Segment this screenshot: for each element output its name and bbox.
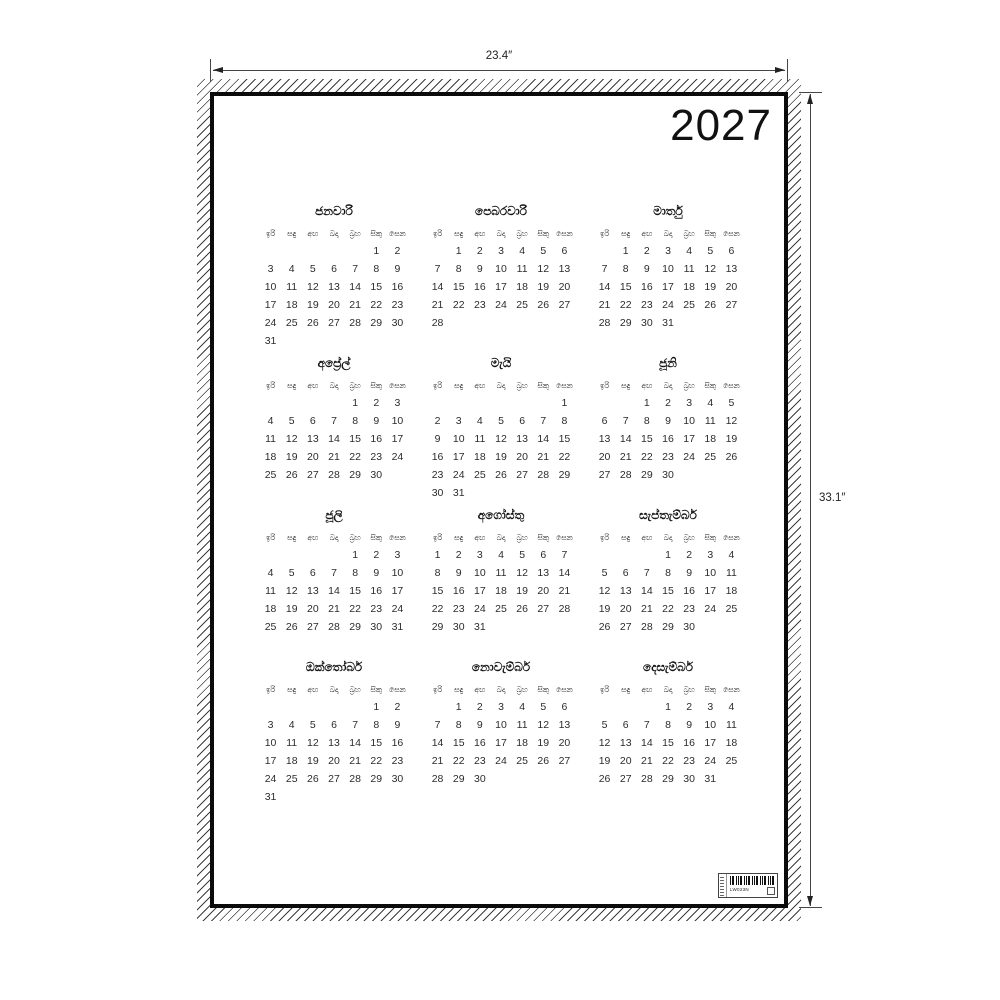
- date-cell: 9: [448, 567, 469, 579]
- date-cell: 3: [679, 397, 700, 409]
- date-cell: 2: [366, 397, 387, 409]
- date-cell: 5: [594, 567, 615, 579]
- date-cell: 27: [594, 469, 615, 481]
- day-header-cell: බදා: [490, 684, 511, 695]
- date-cell: 25: [260, 469, 281, 481]
- date-cell: 28: [533, 469, 554, 481]
- day-header-cell: බදා: [490, 532, 511, 543]
- dates-grid: 1234567891011121314151617181920212223242…: [594, 546, 742, 654]
- date-cell: 1: [554, 397, 575, 409]
- date-cell: 19: [594, 603, 615, 615]
- date-cell: 10: [387, 415, 408, 427]
- date-cell: 18: [512, 281, 533, 293]
- date-cell: 4: [512, 701, 533, 713]
- day-header-cell: බ්‍රහ: [679, 532, 700, 543]
- arrow-right-icon: [775, 67, 785, 73]
- date-cell: 26: [594, 621, 615, 633]
- date-cell: 8: [448, 719, 469, 731]
- date-cell: 12: [302, 281, 323, 293]
- date-cell: 23: [679, 603, 700, 615]
- date-cell: 31: [448, 487, 469, 499]
- date-cell: 4: [469, 415, 490, 427]
- date-cell: 3: [469, 549, 490, 561]
- day-header-cell: සඳු: [281, 228, 302, 239]
- day-header-cell: බදා: [323, 532, 344, 543]
- date-cell: 11: [721, 719, 742, 731]
- day-header-cell: බ්‍රහ: [345, 532, 366, 543]
- date-cell: 20: [323, 755, 344, 767]
- date-cell: 28: [345, 773, 366, 785]
- date-cell: 6: [302, 415, 323, 427]
- day-header-cell: ඉරි: [427, 532, 448, 543]
- dimension-line: [213, 70, 785, 71]
- date-cell: 2: [679, 701, 700, 713]
- date-cell: 27: [554, 755, 575, 767]
- date-cell: 8: [427, 567, 448, 579]
- width-value: 23.4″: [480, 50, 518, 62]
- date-cell: 10: [260, 281, 281, 293]
- date-cell: 5: [594, 719, 615, 731]
- day-header-cell: සිකු: [700, 228, 721, 239]
- day-header-cell: සඳු: [448, 532, 469, 543]
- date-cell: 26: [302, 773, 323, 785]
- date-cell: 7: [554, 549, 575, 561]
- date-cell: 25: [281, 773, 302, 785]
- date-cell: 13: [323, 281, 344, 293]
- date-cell: 22: [448, 755, 469, 767]
- date-cell: 23: [427, 469, 448, 481]
- day-header-cell: සිකු: [533, 228, 554, 239]
- date-cell: 25: [700, 451, 721, 463]
- date-cell: 30: [636, 317, 657, 329]
- date-cell: 9: [679, 567, 700, 579]
- date-cell: 10: [448, 433, 469, 445]
- day-header-row: ඉරිසඳුඅඟබදාබ්‍රහසිකුසෙන: [594, 228, 742, 239]
- date-cell: 29: [657, 621, 678, 633]
- date-cell: 7: [345, 263, 366, 275]
- day-header-cell: සිකු: [533, 532, 554, 543]
- day-header-cell: සිකු: [366, 684, 387, 695]
- date-cell: 26: [281, 621, 302, 633]
- day-header-row: ඉරිසඳුඅඟබදාබ්‍රහසිකුසෙන: [260, 684, 408, 695]
- month-block: සැප්තැම්බර්ඉරිසඳුඅඟබදාබ්‍රහසිකුසෙන123456…: [594, 508, 742, 660]
- day-header-cell: අඟ: [469, 532, 490, 543]
- date-cell: 9: [636, 263, 657, 275]
- date-cell: 22: [657, 603, 678, 615]
- date-cell: 8: [554, 415, 575, 427]
- date-cell: 23: [657, 451, 678, 463]
- date-cell: 15: [366, 281, 387, 293]
- date-cell: 8: [345, 415, 366, 427]
- date-cell: 10: [679, 415, 700, 427]
- date-cell: 18: [721, 585, 742, 597]
- date-cell: 27: [302, 469, 323, 481]
- date-cell: 1: [366, 245, 387, 257]
- date-cell: 21: [554, 585, 575, 597]
- date-cell: 18: [490, 585, 511, 597]
- date-cell: 13: [615, 585, 636, 597]
- width-dimension-label: 23.4″: [213, 50, 785, 62]
- date-cell: 10: [700, 567, 721, 579]
- day-header-cell: බ්‍රහ: [679, 380, 700, 391]
- date-cell: 10: [657, 263, 678, 275]
- date-cell: 1: [345, 549, 366, 561]
- date-cell: 28: [345, 317, 366, 329]
- date-cell: 30: [469, 773, 490, 785]
- day-header-row: ඉරිසඳුඅඟබදාබ්‍රහසිකුසෙන: [427, 380, 575, 391]
- date-cell: 22: [366, 755, 387, 767]
- date-cell: 30: [427, 487, 448, 499]
- date-cell: 16: [657, 433, 678, 445]
- date-cell: 24: [448, 469, 469, 481]
- day-header-cell: බ්‍රහ: [345, 228, 366, 239]
- dates-grid: 1234567891011121314151617181920212223242…: [594, 394, 742, 502]
- date-cell: 3: [260, 263, 281, 275]
- date-cell: 2: [679, 549, 700, 561]
- day-header-cell: සිකු: [366, 228, 387, 239]
- date-cell: 21: [615, 451, 636, 463]
- date-cell: 22: [345, 603, 366, 615]
- date-cell: 6: [594, 415, 615, 427]
- date-cell: 29: [448, 773, 469, 785]
- date-cell: 24: [490, 299, 511, 311]
- date-cell: 15: [636, 433, 657, 445]
- date-cell: 16: [366, 433, 387, 445]
- date-cell: 22: [366, 299, 387, 311]
- date-cell: 17: [700, 737, 721, 749]
- arrow-up-icon: [807, 94, 813, 104]
- day-header-cell: බදා: [657, 228, 678, 239]
- date-cell: 5: [512, 549, 533, 561]
- date-cell: 24: [387, 603, 408, 615]
- month-title: මාර්තු: [594, 204, 742, 219]
- day-header-cell: සෙන: [554, 228, 575, 239]
- day-header-cell: සිකු: [366, 380, 387, 391]
- date-cell: 12: [594, 737, 615, 749]
- date-cell: 20: [594, 451, 615, 463]
- day-header-cell: බදා: [490, 380, 511, 391]
- month-title: අගෝස්තු: [427, 508, 575, 523]
- day-header-cell: සිකු: [700, 380, 721, 391]
- date-cell: 27: [615, 621, 636, 633]
- date-cell: 17: [387, 433, 408, 445]
- day-header-row: ඉරිසඳුඅඟබදාබ්‍රහසිකුසෙන: [427, 684, 575, 695]
- day-header-cell: අඟ: [302, 684, 323, 695]
- date-cell: 2: [657, 397, 678, 409]
- day-header-cell: සඳු: [615, 532, 636, 543]
- date-cell: 27: [302, 621, 323, 633]
- date-cell: 14: [427, 737, 448, 749]
- date-cell: 25: [281, 317, 302, 329]
- day-header-cell: බදා: [323, 684, 344, 695]
- date-cell: 13: [554, 263, 575, 275]
- day-header-cell: බදා: [490, 228, 511, 239]
- day-header-cell: ඉරි: [427, 380, 448, 391]
- date-cell: 14: [345, 281, 366, 293]
- date-cell: 2: [469, 245, 490, 257]
- calendar-poster: 2027 ජනවාරිඉරිසඳුඅඟබදාබ්‍රහසිකුසෙන123456…: [210, 92, 788, 908]
- day-header-cell: සෙන: [387, 684, 408, 695]
- date-cell: 18: [260, 603, 281, 615]
- dimension-tick: [799, 907, 822, 908]
- dimension-tick: [787, 59, 788, 82]
- date-cell: 26: [281, 469, 302, 481]
- date-cell: 26: [533, 299, 554, 311]
- date-cell: 30: [387, 317, 408, 329]
- month-block: දෙසැම්බර්ඉරිසඳුඅඟබදාබ්‍රහසිකුසෙන12345678…: [594, 660, 742, 812]
- date-cell: 18: [512, 737, 533, 749]
- date-cell: 15: [345, 585, 366, 597]
- date-cell: 23: [469, 755, 490, 767]
- date-cell: 20: [615, 755, 636, 767]
- dates-grid: 1234567891011121314151617181920212223242…: [427, 698, 575, 806]
- date-cell: 14: [554, 567, 575, 579]
- date-cell: 23: [366, 451, 387, 463]
- day-header-cell: බදා: [657, 684, 678, 695]
- date-cell: 18: [700, 433, 721, 445]
- date-cell: 9: [366, 415, 387, 427]
- date-cell: 25: [679, 299, 700, 311]
- day-header-cell: ඉරි: [594, 228, 615, 239]
- day-header-row: ඉරිසඳුඅඟබදාබ්‍රහසිකුසෙන: [260, 228, 408, 239]
- date-cell: 2: [387, 701, 408, 713]
- date-cell: 16: [469, 737, 490, 749]
- date-cell: 29: [554, 469, 575, 481]
- date-cell: 4: [700, 397, 721, 409]
- date-cell: 25: [721, 603, 742, 615]
- date-cell: 4: [721, 701, 742, 713]
- date-cell: 23: [448, 603, 469, 615]
- date-cell: 11: [721, 567, 742, 579]
- date-cell: 18: [281, 755, 302, 767]
- date-cell: 30: [366, 469, 387, 481]
- day-header-cell: අඟ: [302, 532, 323, 543]
- day-header-cell: බදා: [657, 380, 678, 391]
- dimension-tick: [799, 92, 822, 93]
- day-header-cell: සඳු: [281, 684, 302, 695]
- date-cell: 25: [512, 299, 533, 311]
- day-header-cell: සිකු: [700, 684, 721, 695]
- day-header-cell: බදා: [323, 228, 344, 239]
- date-cell: 16: [679, 585, 700, 597]
- date-cell: 17: [657, 281, 678, 293]
- day-header-cell: ඉරි: [594, 684, 615, 695]
- date-cell: 30: [657, 469, 678, 481]
- date-cell: 19: [302, 755, 323, 767]
- date-cell: 9: [657, 415, 678, 427]
- date-cell: 3: [700, 701, 721, 713]
- date-cell: 12: [700, 263, 721, 275]
- date-cell: 11: [700, 415, 721, 427]
- date-cell: 2: [366, 549, 387, 561]
- dates-grid: 1234567891011121314151617181920212223242…: [594, 242, 742, 350]
- date-cell: 27: [721, 299, 742, 311]
- date-cell: 1: [366, 701, 387, 713]
- date-cell: 1: [636, 397, 657, 409]
- dates-grid: 1234567891011121314151617181920212223242…: [260, 242, 408, 350]
- date-cell: 21: [345, 755, 366, 767]
- date-cell: 21: [533, 451, 554, 463]
- month-title: දෙසැම්බර්: [594, 660, 742, 675]
- month-block: අගෝස්තුඉරිසඳුඅඟබදාබ්‍රහසිකුසෙන1234567891…: [427, 508, 575, 660]
- date-cell: 23: [469, 299, 490, 311]
- day-header-cell: අඟ: [302, 228, 323, 239]
- date-cell: 8: [657, 719, 678, 731]
- day-header-cell: අඟ: [636, 380, 657, 391]
- date-cell: 8: [345, 567, 366, 579]
- date-cell: 23: [366, 603, 387, 615]
- dates-grid: 1234567891011121314151617181920212223242…: [260, 394, 408, 502]
- day-header-cell: ඉරි: [260, 684, 281, 695]
- date-cell: 6: [615, 567, 636, 579]
- date-cell: 23: [636, 299, 657, 311]
- day-header-cell: ඉරි: [260, 532, 281, 543]
- date-cell: 9: [387, 719, 408, 731]
- date-cell: 2: [387, 245, 408, 257]
- day-header-cell: අඟ: [636, 532, 657, 543]
- date-cell: 28: [323, 469, 344, 481]
- date-cell: 20: [533, 585, 554, 597]
- day-header-cell: අඟ: [302, 380, 323, 391]
- day-header-cell: ඉරි: [260, 228, 281, 239]
- date-cell: 17: [490, 737, 511, 749]
- day-header-cell: අඟ: [469, 228, 490, 239]
- date-cell: 12: [281, 433, 302, 445]
- date-cell: 14: [615, 433, 636, 445]
- date-cell: 15: [615, 281, 636, 293]
- month-block: පෙබරවාරිඉරිසඳුඅඟබදාබ්‍රහසිකුසෙන123456789…: [427, 204, 575, 356]
- date-cell: 29: [657, 773, 678, 785]
- date-cell: 8: [366, 719, 387, 731]
- date-cell: 13: [323, 737, 344, 749]
- day-header-cell: සෙන: [721, 684, 742, 695]
- day-header-cell: ඉරි: [260, 380, 281, 391]
- date-cell: 6: [554, 701, 575, 713]
- date-cell: 3: [387, 397, 408, 409]
- date-cell: 9: [387, 263, 408, 275]
- date-cell: 1: [657, 549, 678, 561]
- date-cell: 12: [533, 263, 554, 275]
- date-cell: 31: [700, 773, 721, 785]
- date-cell: 7: [594, 263, 615, 275]
- date-cell: 28: [427, 317, 448, 329]
- day-header-cell: බ්‍රහ: [512, 532, 533, 543]
- date-cell: 15: [366, 737, 387, 749]
- date-cell: 7: [636, 567, 657, 579]
- date-cell: 19: [533, 281, 554, 293]
- date-cell: 21: [636, 603, 657, 615]
- day-header-cell: සෙන: [721, 532, 742, 543]
- day-header-cell: ඉරි: [427, 228, 448, 239]
- date-cell: 4: [512, 245, 533, 257]
- day-header-cell: සඳු: [615, 684, 636, 695]
- product-label: LW023N: [718, 873, 778, 898]
- date-cell: 31: [260, 335, 281, 347]
- date-cell: 31: [260, 791, 281, 803]
- day-header-cell: බ්‍රහ: [512, 380, 533, 391]
- date-cell: 26: [302, 317, 323, 329]
- date-cell: 6: [615, 719, 636, 731]
- date-cell: 8: [615, 263, 636, 275]
- date-cell: 27: [533, 603, 554, 615]
- day-header-cell: සඳු: [448, 228, 469, 239]
- date-cell: 24: [260, 317, 281, 329]
- date-cell: 2: [636, 245, 657, 257]
- months-grid: ජනවාරිඉරිසඳුඅඟබදාබ්‍රහසිකුසෙන12345678910…: [260, 204, 742, 824]
- day-header-row: ඉරිසඳුඅඟබදාබ්‍රහසිකුසෙන: [594, 684, 742, 695]
- date-cell: 5: [533, 245, 554, 257]
- day-header-cell: සෙන: [387, 380, 408, 391]
- date-cell: 19: [490, 451, 511, 463]
- date-cell: 6: [554, 245, 575, 257]
- day-header-cell: අඟ: [636, 228, 657, 239]
- date-cell: 21: [427, 755, 448, 767]
- day-header-cell: අඟ: [469, 684, 490, 695]
- date-cell: 12: [594, 585, 615, 597]
- date-cell: 24: [469, 603, 490, 615]
- month-title: සැප්තැම්බර්: [594, 508, 742, 523]
- date-cell: 4: [721, 549, 742, 561]
- date-cell: 17: [700, 585, 721, 597]
- date-cell: 28: [594, 317, 615, 329]
- date-cell: 6: [323, 263, 344, 275]
- date-cell: 19: [281, 451, 302, 463]
- date-cell: 20: [302, 603, 323, 615]
- date-cell: 2: [427, 415, 448, 427]
- date-cell: 3: [387, 549, 408, 561]
- day-header-cell: අඟ: [469, 380, 490, 391]
- date-cell: 27: [323, 773, 344, 785]
- date-cell: 21: [636, 755, 657, 767]
- date-cell: 30: [679, 773, 700, 785]
- date-cell: 19: [721, 433, 742, 445]
- date-cell: 10: [469, 567, 490, 579]
- label-side-text: [719, 874, 727, 897]
- date-cell: 24: [657, 299, 678, 311]
- date-cell: 5: [533, 701, 554, 713]
- date-cell: 20: [554, 737, 575, 749]
- day-header-cell: සිකු: [533, 684, 554, 695]
- day-header-row: ඉරිසඳුඅඟබදාබ්‍රහසිකුසෙන: [260, 380, 408, 391]
- date-cell: 29: [427, 621, 448, 633]
- date-cell: 28: [636, 773, 657, 785]
- date-cell: 7: [533, 415, 554, 427]
- day-header-cell: සඳු: [615, 228, 636, 239]
- date-cell: 5: [281, 567, 302, 579]
- date-cell: 4: [260, 567, 281, 579]
- date-cell: 3: [448, 415, 469, 427]
- date-cell: 13: [554, 719, 575, 731]
- date-cell: 7: [427, 263, 448, 275]
- label-code: LW023N: [730, 887, 749, 892]
- date-cell: 16: [679, 737, 700, 749]
- date-cell: 27: [615, 773, 636, 785]
- date-cell: 18: [469, 451, 490, 463]
- date-cell: 15: [448, 281, 469, 293]
- day-header-cell: සඳු: [448, 380, 469, 391]
- date-cell: 7: [323, 415, 344, 427]
- date-cell: 19: [533, 737, 554, 749]
- day-header-row: ඉරිසඳුඅඟබදාබ්‍රහසිකුසෙන: [260, 532, 408, 543]
- date-cell: 15: [657, 737, 678, 749]
- day-header-cell: සෙන: [554, 380, 575, 391]
- date-cell: 16: [469, 281, 490, 293]
- date-cell: 3: [700, 549, 721, 561]
- day-header-cell: බදා: [657, 532, 678, 543]
- date-cell: 4: [260, 415, 281, 427]
- dates-grid: 1234567891011121314151617181920212223242…: [427, 394, 575, 502]
- date-cell: 19: [302, 299, 323, 311]
